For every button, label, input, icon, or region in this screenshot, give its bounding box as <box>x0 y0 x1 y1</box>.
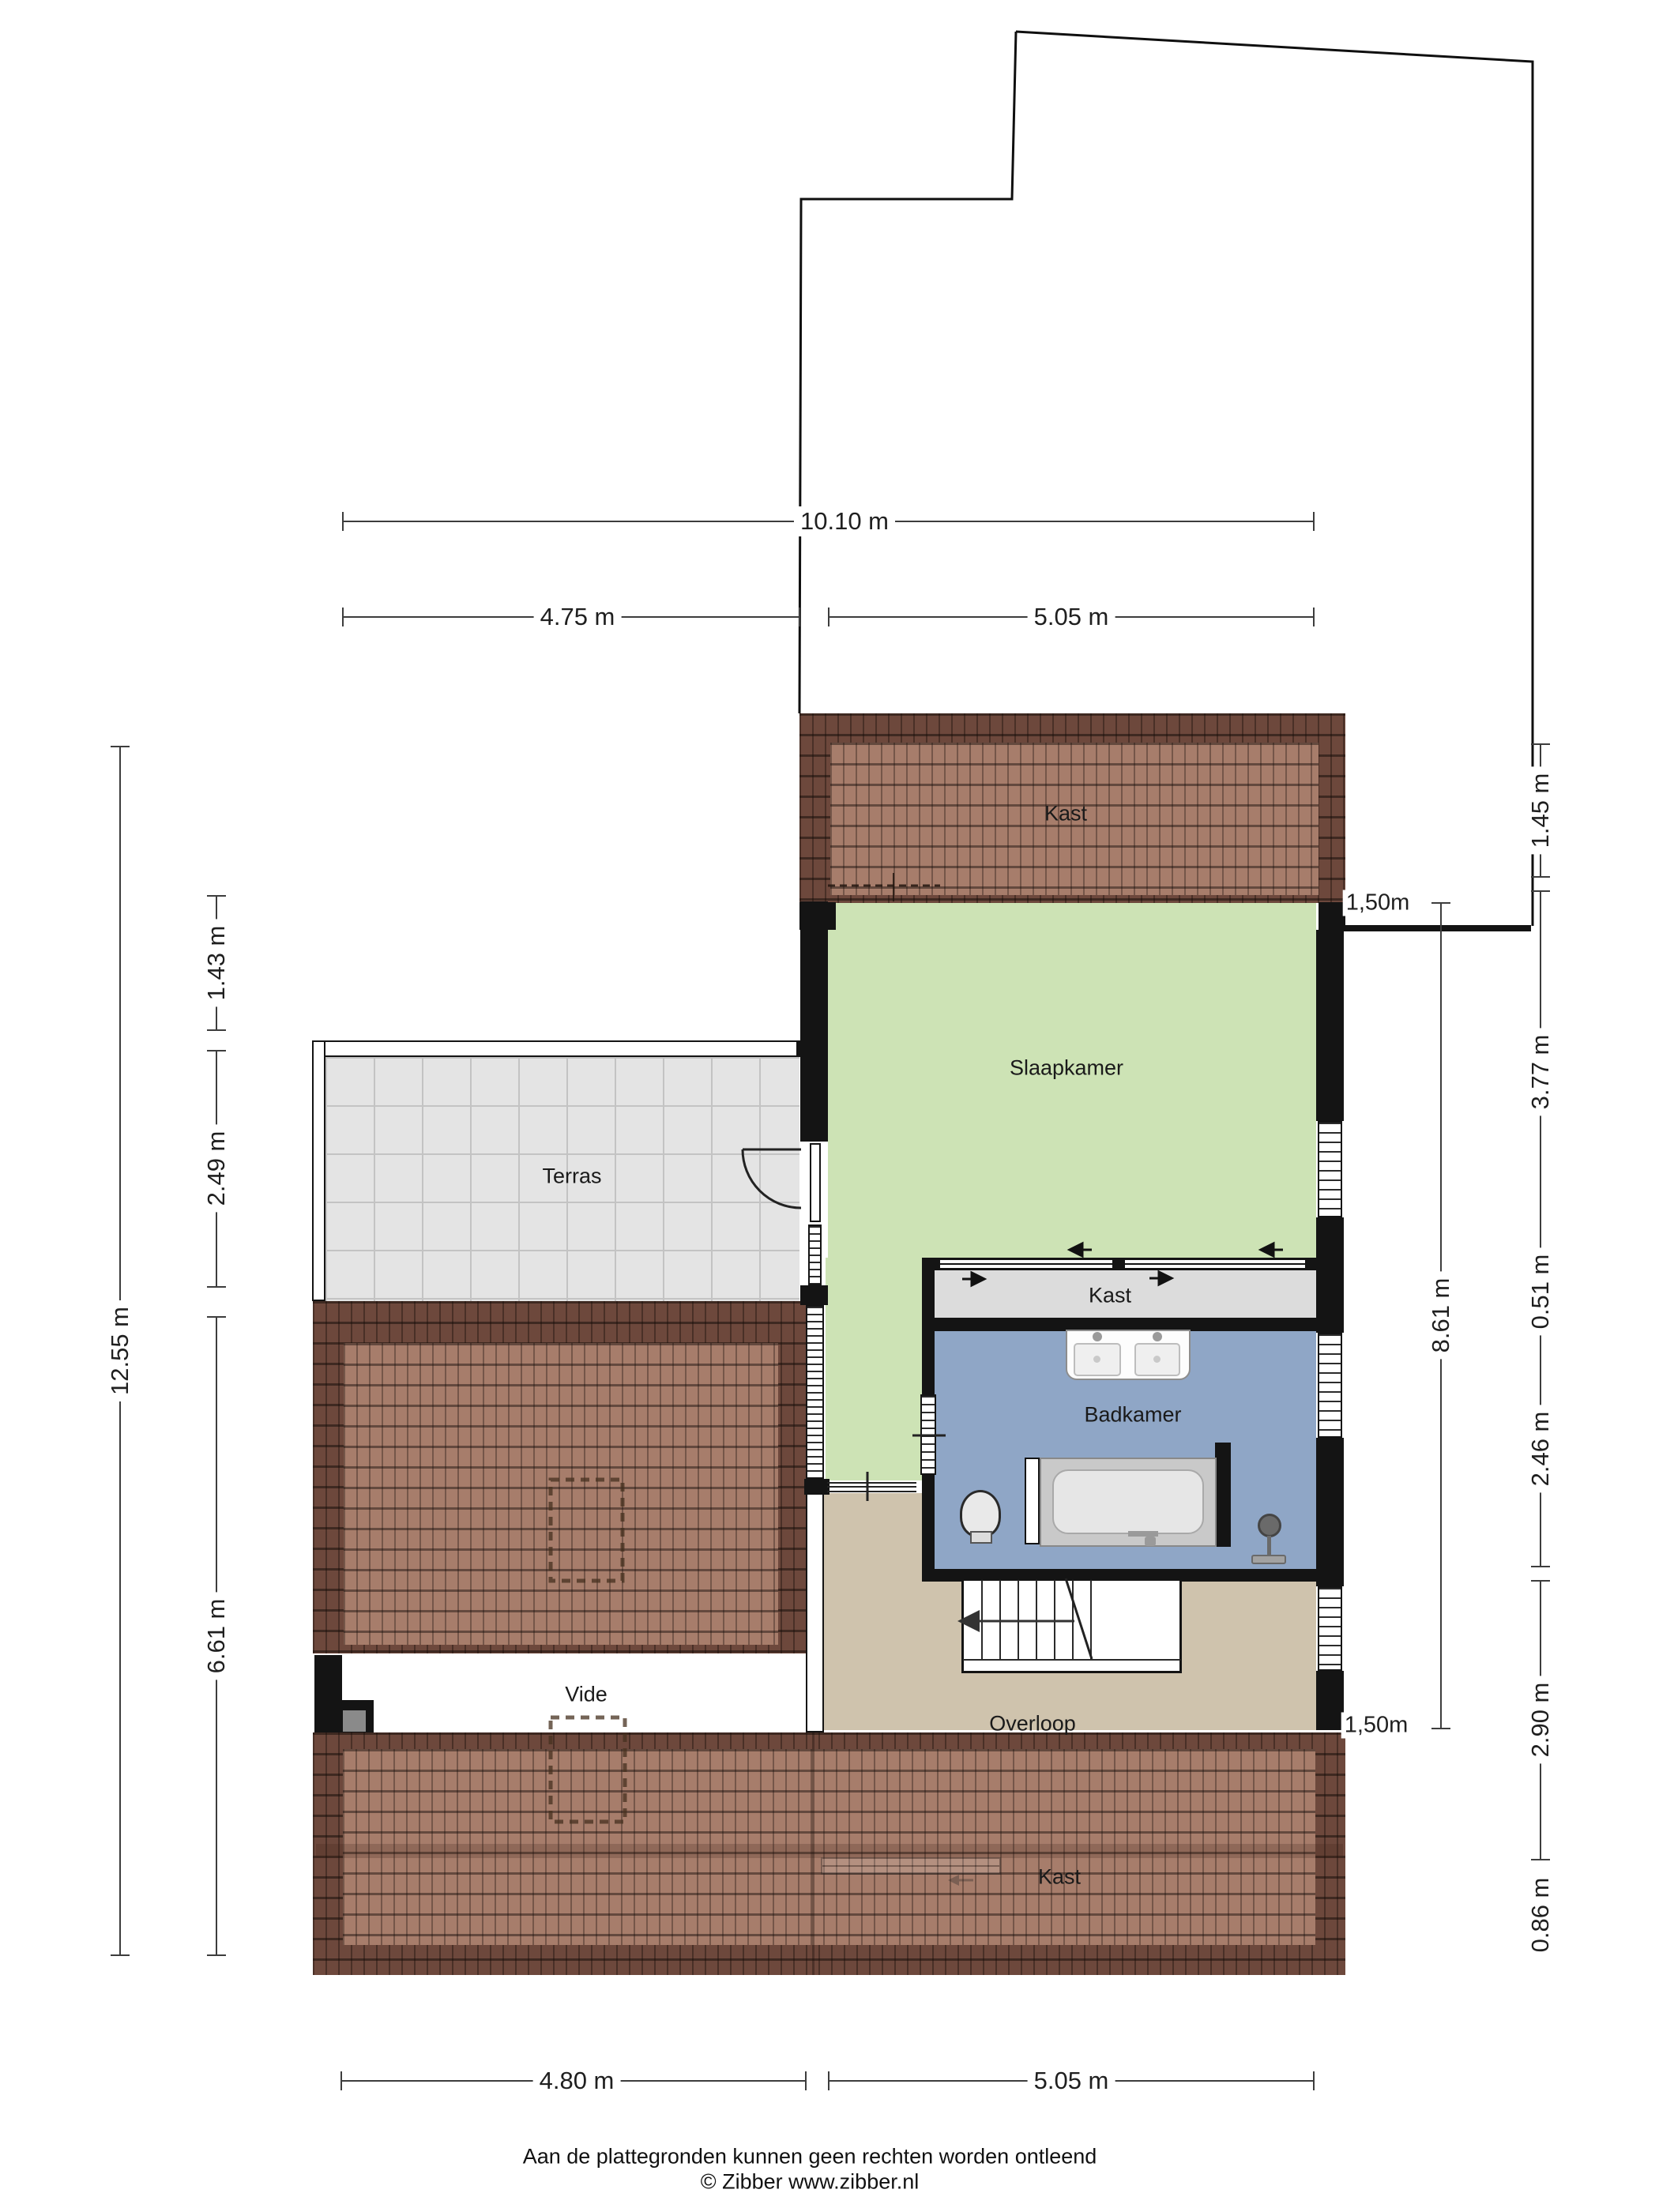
room-label-overloop: Overloop <box>986 1712 1079 1736</box>
height-contour-line-top <box>828 873 940 901</box>
dim-right-4: 2.46 m <box>1525 1405 1556 1493</box>
dim-left-2: 2.49 m <box>201 1125 231 1213</box>
dim-top-total: 10.10 m <box>794 506 895 536</box>
dim-bottom-right: 5.05 m <box>1028 2066 1115 2096</box>
room-label-terras: Terras <box>539 1164 604 1189</box>
room-label-kast-top: Kast <box>1041 802 1090 826</box>
dim-right-1: 1.45 m <box>1525 767 1556 855</box>
room-label-vide: Vide <box>562 1683 611 1707</box>
dim-left-3: 6.61 m <box>201 1593 231 1680</box>
dim-right-2: 3.77 m <box>1525 1029 1556 1116</box>
dim-bottom-left: 4.80 m <box>533 2066 621 2096</box>
room-label-kast-mid: Kast <box>1085 1284 1134 1308</box>
dim-right-5: 2.90 m <box>1525 1676 1556 1764</box>
dim-left-1: 1.43 m <box>201 920 231 1007</box>
room-label-badkamer: Badkamer <box>1081 1403 1184 1428</box>
footer-copyright: © Zibber www.zibber.nl <box>701 2170 920 2195</box>
roof-hatch-dashed-outlines <box>551 1480 625 1822</box>
property-boundary-line <box>799 32 1533 926</box>
dim-right-inner: 8.61 m <box>1426 1272 1456 1360</box>
height-marker-top: 1,50m <box>1343 890 1413 916</box>
floorplan-page: { "rooms": { "kast_top": "Kast", "slaapk… <box>0 0 1659 2212</box>
door-swing-icon <box>743 1149 801 1208</box>
stairs-direction-arrow-icon <box>957 1578 1092 1659</box>
footer-disclaimer: Aan de plattegronden kunnen geen rechten… <box>523 2145 1097 2169</box>
dimension-lines <box>111 512 1550 2090</box>
loft-ladder-icon <box>822 1858 1000 1886</box>
height-marker-bottom: 1,50m <box>1341 1713 1412 1739</box>
dim-left-outer: 12.55 m <box>105 1300 135 1401</box>
linework-overlay <box>0 0 1659 2212</box>
railing-strip <box>827 1472 916 1501</box>
dim-right-6: 0.86 m <box>1525 1872 1556 1959</box>
dim-top-right: 5.05 m <box>1028 602 1115 632</box>
dim-top-left: 4.75 m <box>534 602 622 632</box>
dim-right-3: 0.51 m <box>1525 1248 1556 1336</box>
sliding-door-arrow-icons <box>962 1243 1283 1285</box>
room-label-slaapkamer: Slaapkamer <box>1006 1056 1127 1081</box>
room-label-kast-bottom: Kast <box>1035 1865 1084 1890</box>
